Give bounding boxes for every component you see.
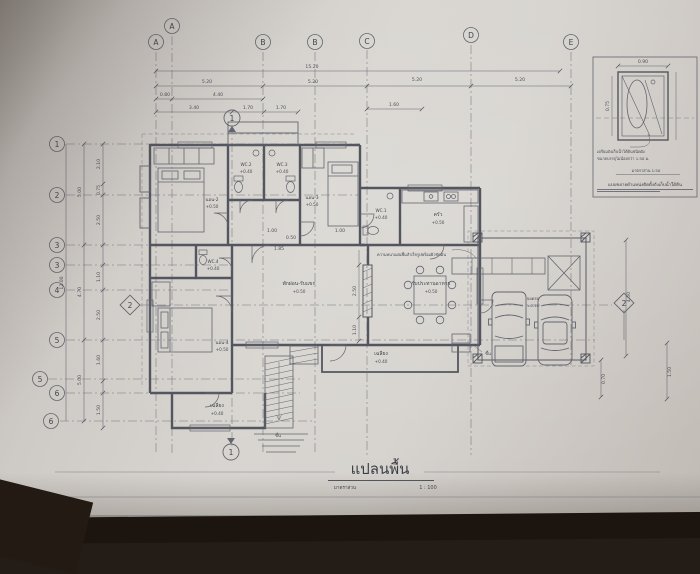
up-label-1: ขึ้น: [485, 350, 491, 356]
scale-label: มาตราส่วน: [334, 485, 357, 491]
dim-520-4: 5.20: [515, 77, 525, 83]
room-wc1: WC.1: [375, 208, 386, 213]
grid-label-3a: 3: [55, 241, 60, 250]
detail-caption: แบบขยายตำแหน่งติดตั้งถังเก็บน้ำใต้ดิน: [608, 180, 682, 188]
section-markers: 1 1 2 2: [120, 110, 634, 460]
dim-left-150: 1.50: [96, 405, 102, 415]
dim-left-500a: 5.00: [77, 187, 83, 197]
detail-note-1: เตรียมถังเก็บน้ำใต้ดินชนิดฝัง: [597, 147, 645, 154]
doors: [205, 200, 493, 407]
bed-bedroom3: [328, 162, 358, 226]
grid-label-c: C: [364, 37, 369, 46]
grid-label-b2: B: [312, 38, 317, 47]
grid-label-3b: 3: [55, 261, 60, 270]
dim-170-2: 1.70: [276, 105, 286, 111]
room-wc1-level: +0.40: [375, 215, 388, 220]
scale-value: 1 : 100: [419, 485, 437, 491]
grid-label-e: E: [569, 38, 574, 47]
room-wc4-level: +0.40: [207, 266, 220, 271]
outdoor-steps: [254, 434, 308, 452]
room-kitchen-level: +0.50: [432, 220, 445, 225]
grid-label-5b: 5: [38, 375, 43, 384]
dim-right-450: 4.50: [626, 292, 632, 302]
room-terrace: เฉลียง: [374, 350, 388, 357]
dim-520-2: 5.20: [308, 79, 318, 85]
dining-set: [404, 266, 456, 324]
dim-left-470: 4.70: [77, 287, 83, 297]
dim-inner-050: 0.50: [286, 235, 296, 241]
room-wc4: WC.4: [207, 259, 218, 264]
dim-inner-185: 1.85: [274, 246, 284, 252]
left-dimensions: 12.00 5.00 4.70 5.00 2.10 0.75 2.50 1.10…: [59, 142, 105, 430]
dim-left-160: 1.60: [96, 355, 102, 365]
bed-bedroom4: [158, 308, 212, 352]
floor-plan-drawing: A A B B C D E 1 2 3 3 4 5 5 6 6: [0, 0, 700, 525]
table-edge: [0, 512, 700, 544]
brick-pier: [363, 265, 372, 317]
sheet-title: แปลนพื้น มาตราส่วน 1 : 100: [55, 458, 660, 491]
room-carport-level: ±0.10: [527, 303, 539, 308]
dim-left-total: 12.00: [59, 276, 65, 289]
storage-tank: [548, 256, 580, 290]
drawing-title: แปลนพื้น: [351, 458, 410, 478]
section-1-bottom: 1: [229, 448, 234, 457]
pickup-truck: [489, 292, 530, 366]
right-dimensions: 4.50 0.70 1.50: [599, 238, 673, 401]
room-dining: รับประทานอาหาร: [412, 281, 451, 287]
room-terrace-level: +0.40: [375, 359, 388, 364]
dim-left-500b: 5.00: [77, 375, 83, 385]
detail-dim-side: 0.75: [605, 101, 611, 111]
porch-stair: [265, 356, 293, 428]
grid-label-1: 1: [55, 140, 60, 149]
dim-right-150: 1.50: [667, 367, 673, 377]
dim-170-1: 1.70: [243, 105, 253, 111]
room-carport: จอดรถ: [527, 296, 540, 301]
top-dimensions: 15.20 5.20 5.20 5.20 5.20 0.80 4.40 3.40…: [154, 64, 573, 114]
dim-left-110: 1.10: [96, 272, 102, 282]
slab-note: ความหนาแผ่นพื้นสำเร็จรูปพร้อมผิวขัดมัน: [377, 250, 446, 258]
dim-inner-100a: 1.00: [267, 228, 277, 234]
dim-top-total: 15.20: [305, 64, 318, 70]
dim-left-210: 2.10: [96, 159, 102, 169]
entry-canopy: [140, 122, 298, 228]
dim-440: 4.40: [213, 92, 223, 98]
dim-right-070: 0.70: [601, 374, 607, 384]
room-wc2: WC.2: [240, 162, 251, 167]
grid-label-b1: B: [260, 38, 265, 47]
dim-inner-250: 2.50: [352, 286, 358, 296]
grid-label-d: D: [468, 31, 474, 40]
dim-left-250b: 2.50: [96, 310, 102, 320]
room-bed3: นอน-3: [305, 195, 318, 201]
room-wc3-level: +0.40: [276, 169, 289, 174]
room-kitchen: ครัว: [434, 212, 443, 218]
bed-bedroom2: [158, 168, 204, 232]
grid-label-6b: 6: [49, 417, 54, 426]
photo-of-blueprint: A A B B C D E 1 2 3 3 4 5 5 6 6: [0, 0, 700, 525]
room-porch: เฉลียง: [210, 402, 224, 409]
detail-note-2: ขนาดบรรจุไม่น้อยกว่า 1.50 ม.: [597, 156, 649, 162]
grid-label-2: 2: [55, 191, 60, 200]
up-label-2: ขึ้น: [275, 432, 281, 438]
dim-160: 1.60: [389, 102, 399, 108]
room-living: พักผ่อน-รับแขก: [282, 281, 315, 287]
room-wc2-level: +0.40: [240, 169, 253, 174]
grid-label-a2: A: [169, 22, 175, 31]
room-bed2: นอน-2: [205, 197, 218, 203]
dim-inner-110: 1.10: [352, 325, 358, 335]
dim-080: 0.80: [160, 92, 170, 98]
dim-520-1: 5.20: [202, 79, 212, 85]
detail-sub-caption: มาตราส่วน 1:50: [632, 168, 661, 173]
terrace-step: [290, 346, 318, 364]
dim-340: 3.40: [189, 105, 199, 111]
car: [535, 295, 576, 365]
room-porch-level: +0.40: [211, 411, 224, 416]
room-living-level: +0.50: [293, 289, 306, 294]
detail-box: 0.90 0.75 เตรียมถังเก็บน้ำใต้ดินชนิดฝัง …: [593, 57, 697, 197]
grid-label-a1: A: [153, 38, 159, 47]
room-wc3: WC.3: [276, 162, 287, 167]
dim-520-3: 5.20: [412, 77, 422, 83]
room-dining-level: +0.50: [425, 289, 438, 294]
room-bed4: นอน-4: [215, 340, 228, 346]
room-bed3-level: +0.50: [306, 202, 319, 207]
room-bed4-level: +0.50: [216, 347, 229, 352]
section-2-left: 2: [128, 301, 133, 310]
grid-label-6a: 6: [55, 389, 60, 398]
dim-left-075: 0.75: [96, 185, 102, 195]
dim-inner-100b: 1.00: [335, 228, 345, 234]
grid-label-4: 4: [55, 286, 60, 295]
grid-bubbles-top: A A B B C D E: [149, 19, 579, 50]
detail-dim-top: 0.90: [638, 59, 648, 65]
grid-label-5a: 5: [55, 336, 60, 345]
dim-left-250a: 2.50: [96, 215, 102, 225]
room-bed2-level: +0.50: [206, 204, 219, 209]
